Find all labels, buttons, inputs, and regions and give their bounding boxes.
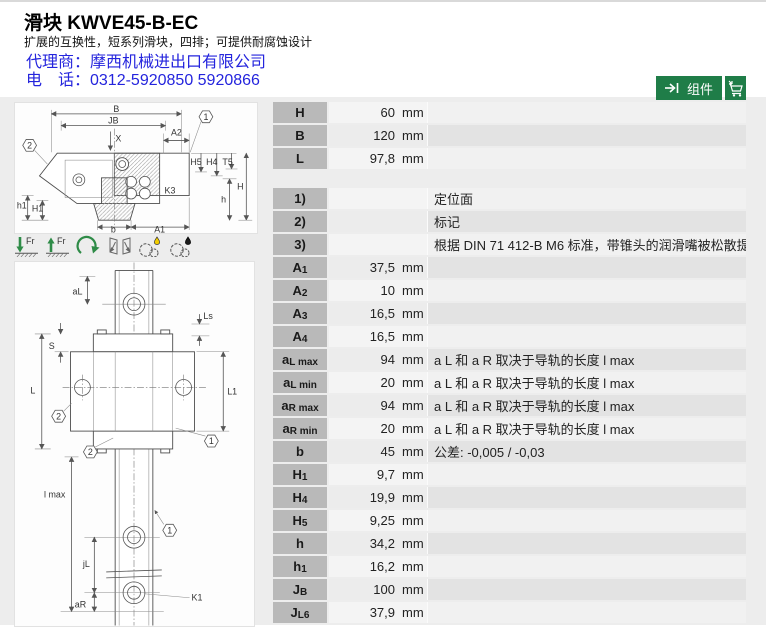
param-value: 9,25mm [329,510,428,531]
dim-label-JB: JB [108,116,118,126]
cross-section-drawing: B JB A2 X 1 2 H5 H4 T5 H h K3 [14,102,258,234]
dim-label-H: H [237,182,243,192]
param-label: H [273,102,327,123]
unit-label: mm [395,306,424,321]
table-row: h34,2mm [273,533,746,554]
unit-label: mm [395,605,424,620]
param-note [428,487,746,508]
dim-label-jL: jL [82,559,90,569]
param-note: a L 和 a R 取决于导轨的长度 l max [428,395,746,416]
param-value: 94mm [329,395,428,416]
param-value [329,188,428,209]
callout-2: 2 [27,141,32,151]
callout-2: 2 [56,411,61,421]
param-label: h1 [273,556,327,577]
dim-label-S: S [49,341,55,351]
param-label: 2) [273,211,327,232]
spec-table: H60mmB120mmL97,8mm1)定位面2)标记3)根据 DIN 71 4… [273,102,746,625]
enter-arrow-icon [665,82,680,94]
dim-label-aL: aL [73,286,83,296]
unit-label: mm [395,260,424,275]
param-note [428,280,746,301]
dim-label-aR: aR [75,600,87,610]
fr-label: Fr [57,236,66,246]
unit-label: mm [395,128,424,143]
table-row: JL637,9mm [273,602,746,623]
table-row: A137,5mm [273,257,746,278]
dim-label-K1: K1 [192,593,203,603]
dealer-phone-line: 电 话：0312-5920850 5920866 [26,66,260,90]
unit-label: mm [395,513,424,528]
param-value: 10mm [329,280,428,301]
dim-label-h: h [221,194,226,204]
param-value: 120mm [329,125,428,146]
dim-label-X: X [115,133,121,143]
param-value: 60mm [329,102,428,123]
table-row: 2)标记 [273,211,746,232]
cart-icon [728,80,744,97]
table-row: L97,8mm [273,148,746,169]
table-row: b45mm公差: -0,005 / -0,03 [273,441,746,462]
dim-label-lmax: l max [44,490,66,500]
load-direction-up-icon: Fr [45,235,71,257]
param-note: 标记 [428,211,746,232]
param-label: A1 [273,257,327,278]
param-value: 20mm [329,418,428,439]
page-title: 滑块 KWVE45-B-EC [24,8,198,35]
oil-lubrication-icon [138,235,164,257]
table-section: 1)定位面2)标记3)根据 DIN 71 412-B M6 标准，带锥头的润滑嘴… [273,188,746,623]
dim-label-H1: H1 [32,203,43,213]
param-value: 19,9mm [329,487,428,508]
unit-label: mm [395,490,424,505]
param-value [329,234,428,255]
callout-1: 1 [203,112,208,122]
param-label: aL min [273,372,327,393]
table-row: aR min20mma L 和 a R 取决于导轨的长度 l max [273,418,746,439]
page-header: 滑块 KWVE45-B-EC 扩展的互换性，短系列滑块，四排；可提供耐腐蚀设计 … [0,2,766,97]
dim-label-h1: h1 [17,200,27,210]
param-label: b [273,441,327,462]
param-note: 定位面 [428,188,746,209]
table-row: JB100mm [273,579,746,600]
param-note [428,102,746,123]
unit-label: mm [395,283,424,298]
table-row: A210mm [273,280,746,301]
dim-label-A2: A2 [171,128,182,138]
dim-label-K3: K3 [165,186,176,196]
param-label: 3) [273,234,327,255]
param-label: L [273,148,327,169]
param-note [428,533,746,554]
param-note [428,326,746,347]
param-label: JB [273,579,327,600]
param-note [428,602,746,623]
param-note: a L 和 a R 取决于导轨的长度 l max [428,418,746,439]
dim-label-B: B [113,104,119,114]
dim-label-T5: T5 [222,157,232,167]
guidance-surfaces-icon [107,235,133,257]
unit-label: mm [395,559,424,574]
param-value: 34,2mm [329,533,428,554]
component-button[interactable]: 组件 [656,76,722,100]
param-note [428,556,746,577]
unit-label: mm [395,329,424,344]
capability-icons: Fr Fr [14,234,258,257]
param-label: H5 [273,510,327,531]
unit-label: mm [395,444,424,459]
param-note: 公差: -0,005 / -0,03 [428,441,746,462]
param-value: 20mm [329,372,428,393]
param-note: a L 和 a R 取决于导轨的长度 l max [428,349,746,370]
param-note [428,464,746,485]
table-row: h116,2mm [273,556,746,577]
param-label: 1) [273,188,327,209]
param-note [428,303,746,324]
param-label: A2 [273,280,327,301]
dim-label-b: b [111,225,116,233]
param-value: 100mm [329,579,428,600]
table-row: B120mm [273,125,746,146]
param-value: 37,5mm [329,257,428,278]
param-label: A3 [273,303,327,324]
param-value: 9,7mm [329,464,428,485]
param-note: a L 和 a R 取决于导轨的长度 l max [428,372,746,393]
table-row: aL max94mma L 和 a R 取决于导轨的长度 l max [273,349,746,370]
add-to-cart-button[interactable] [725,76,746,100]
param-label: A4 [273,326,327,347]
table-row: 3)根据 DIN 71 412-B M6 标准，带锥头的润滑嘴被松散提供 [273,234,746,255]
top-view-drawing: aL Ls S L L1 2 2 1 1 l max [14,261,255,627]
product-page: 滑块 KWVE45-B-EC 扩展的互换性，短系列滑块，四排；可提供耐腐蚀设计 … [0,0,766,625]
callout-2: 2 [88,447,93,457]
table-row: A316,5mm [273,303,746,324]
param-note [428,148,746,169]
toolbar: 组件 [656,76,746,100]
fr-label: Fr [26,236,35,246]
dim-label-L1: L1 [227,386,237,396]
moment-load-icon [76,235,102,257]
callout-1: 1 [167,525,172,535]
unit-label: mm [395,398,424,413]
unit-label: mm [395,352,424,367]
unit-label: mm [395,421,424,436]
unit-label: mm [395,582,424,597]
param-note [428,579,746,600]
param-value: 16,5mm [329,326,428,347]
param-value: 45mm [329,441,428,462]
unit-label: mm [395,105,424,120]
param-note [428,125,746,146]
table-row: H60mm [273,102,746,123]
param-note: 根据 DIN 71 412-B M6 标准，带锥头的润滑嘴被松散提供 [428,234,746,255]
unit-label: mm [395,375,424,390]
table-row: 1)定位面 [273,188,746,209]
param-label: JL6 [273,602,327,623]
table-row: A416,5mm [273,326,746,347]
table-row: H419,9mm [273,487,746,508]
table-row: H19,7mm [273,464,746,485]
param-value: 37,9mm [329,602,428,623]
load-direction-down-icon: Fr [14,235,40,257]
param-label: B [273,125,327,146]
param-value [329,211,428,232]
unit-label: mm [395,467,424,482]
param-value: 94mm [329,349,428,370]
table-row: aR max94mma L 和 a R 取决于导轨的长度 l max [273,395,746,416]
dim-label-L: L [30,385,35,395]
dim-label-A1: A1 [154,225,165,233]
param-label: aL max [273,349,327,370]
param-label: aR max [273,395,327,416]
param-label: aR min [273,418,327,439]
table-row: aL min20mma L 和 a R 取决于导轨的长度 l max [273,372,746,393]
param-label: H1 [273,464,327,485]
dim-label-Ls: Ls [203,311,213,321]
param-label: h [273,533,327,554]
unit-label: mm [395,151,424,166]
callout-1: 1 [209,436,214,446]
unit-label: mm [395,536,424,551]
param-value: 16,2mm [329,556,428,577]
param-label: H4 [273,487,327,508]
param-value: 16,5mm [329,303,428,324]
dim-label-H5: H5 [190,157,201,167]
param-note [428,510,746,531]
grease-lubrication-icon [169,235,195,257]
table-row: H59,25mm [273,510,746,531]
param-value: 97,8mm [329,148,428,169]
component-button-label: 组件 [687,79,713,98]
param-note [428,257,746,278]
table-section: H60mmB120mmL97,8mm [273,102,746,169]
dim-label-H4: H4 [206,157,217,167]
